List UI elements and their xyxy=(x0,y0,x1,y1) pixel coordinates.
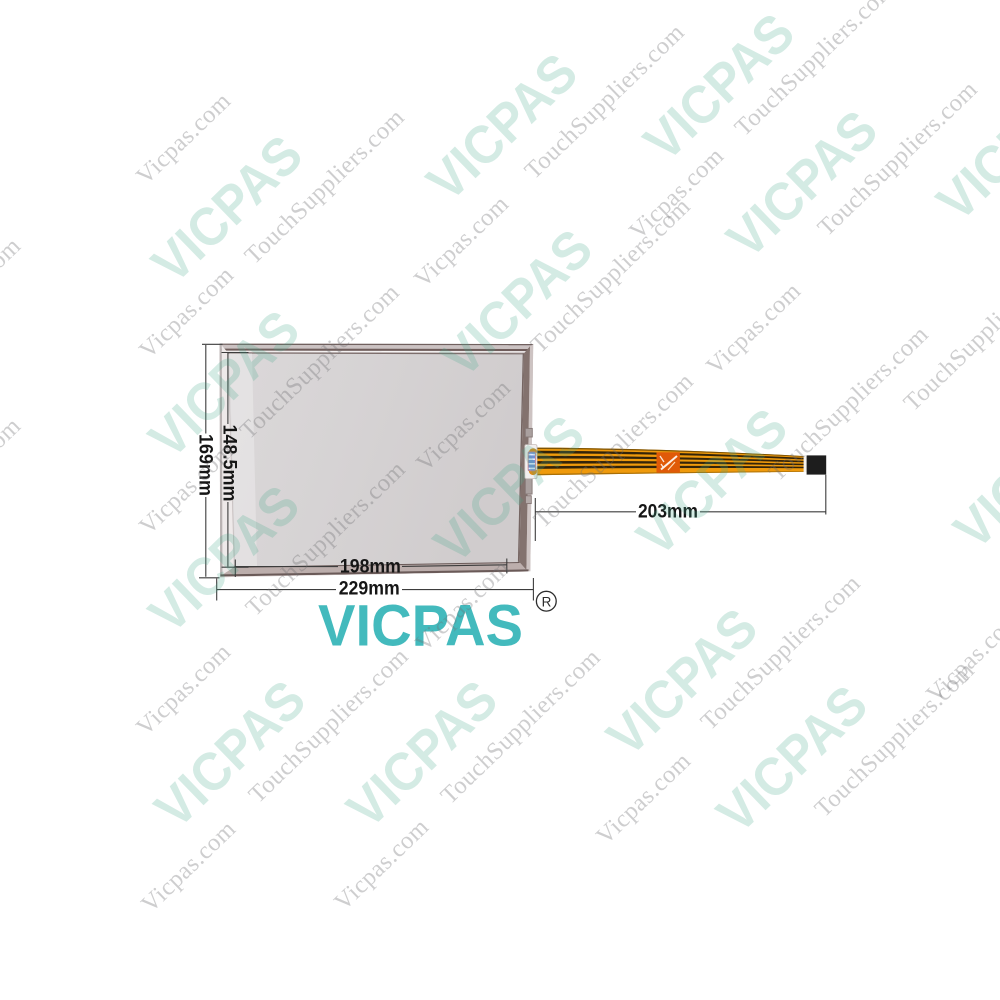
svg-text:R: R xyxy=(542,595,552,610)
svg-text:198mm: 198mm xyxy=(340,556,401,577)
